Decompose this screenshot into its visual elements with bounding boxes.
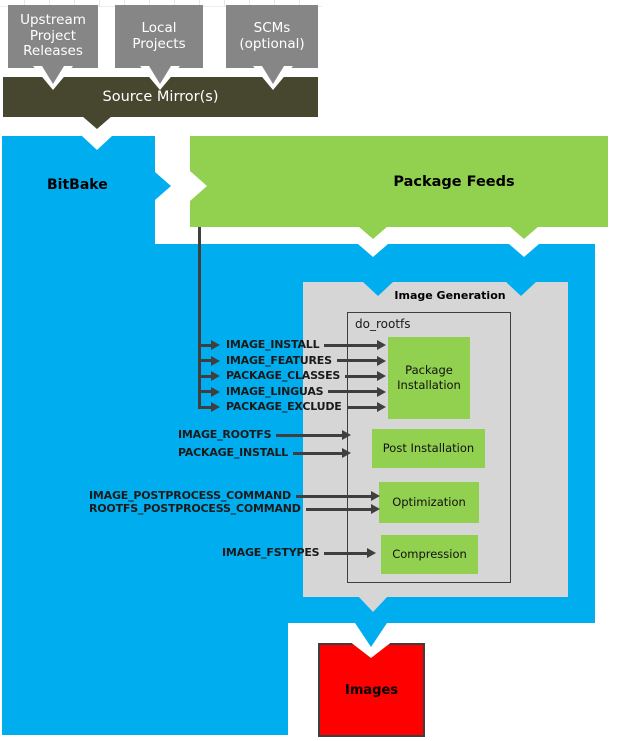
flow-arrow-icon <box>324 548 376 558</box>
post-installation-label: Post Installation <box>383 441 474 456</box>
compression-label: Compression <box>392 547 467 562</box>
variable-row: IMAGE_POSTPROCESS_COMMAND <box>89 489 380 503</box>
flow-arrow-icon <box>293 448 351 458</box>
bitbake-to-images-arrow-icon <box>355 623 387 647</box>
gray-bottom-tail-icon <box>358 596 388 612</box>
variable-row: IMAGE_FSTYPES <box>222 546 376 560</box>
variable-row: ROOTFS_POSTPROCESS_COMMAND <box>89 502 380 516</box>
local-projects-box: Local Projects <box>115 5 203 68</box>
optimization-box: Optimization <box>379 482 479 523</box>
variable-label: PACKAGE_INSTALL <box>178 446 288 460</box>
variable-label: PACKAGE_EXCLUDE <box>226 400 342 414</box>
tail-upstream-icon <box>42 66 64 84</box>
bitbake-label: BitBake <box>47 177 108 193</box>
do-rootfs-label: do_rootfs <box>355 317 411 331</box>
flow-arrow-icon <box>347 402 386 412</box>
flow-arrow-icon <box>345 371 386 381</box>
scms-label: SCMs (optional) <box>226 21 318 53</box>
variable-row: IMAGE_LINGUAS <box>198 385 386 399</box>
flow-arrow-icon <box>276 430 351 440</box>
variable-label: IMAGE_INSTALL <box>226 338 319 352</box>
post-installation-box: Post Installation <box>372 429 485 468</box>
variable-row: PACKAGE_EXCLUDE <box>198 400 386 414</box>
feeds-down-arrow-2-icon <box>509 226 539 239</box>
cyan-into-gray-arrow-2-icon <box>506 282 536 296</box>
flow-arrow-icon <box>296 491 380 501</box>
variable-label: PACKAGE_CLASSES <box>226 369 340 383</box>
upstream-project-releases-box: Upstream Project Releases <box>8 5 98 68</box>
source-mirror-label: Source Mirror(s) <box>103 89 219 105</box>
branch-arrow-icon <box>198 340 220 350</box>
compression-box: Compression <box>381 535 478 574</box>
flow-arrow-icon <box>328 387 386 397</box>
variable-row: PACKAGE_INSTALL <box>178 446 351 460</box>
yocto-image-generation-diagram: Upstream Project Releases Local Projects… <box>0 0 625 741</box>
tail-local-icon <box>149 66 171 84</box>
variable-row: IMAGE_FEATURES <box>198 354 386 368</box>
variable-label: ROOTFS_POSTPROCESS_COMMAND <box>89 502 301 516</box>
scms-box: SCMs (optional) <box>226 5 318 68</box>
variable-label: IMAGE_POSTPROCESS_COMMAND <box>89 489 291 503</box>
flow-arrow-icon <box>306 504 380 514</box>
local-projects-label: Local Projects <box>115 21 203 53</box>
upstream-project-releases-label: Upstream Project Releases <box>8 13 98 61</box>
package-installation-box: Package Installation <box>388 337 470 419</box>
images-label: Images <box>345 683 398 698</box>
flow-arrow-icon <box>324 340 386 350</box>
variable-label: IMAGE_FEATURES <box>226 354 332 368</box>
variable-row: IMAGE_INSTALL <box>198 338 386 352</box>
mirror-to-bitbake-arrow-icon <box>82 116 112 129</box>
branch-arrow-icon <box>198 371 220 381</box>
bitbake-lower-block <box>2 623 288 735</box>
bitbake-top-notch-icon <box>82 136 112 150</box>
variable-row: IMAGE_ROOTFS <box>178 428 351 442</box>
bitbake-notch-2-icon <box>509 244 539 257</box>
package-feeds-left-notch-icon <box>190 171 207 201</box>
bitbake-notch-1-icon <box>358 244 388 257</box>
branch-arrow-icon <box>198 387 220 397</box>
feeds-down-arrow-1-icon <box>358 226 388 239</box>
branch-arrow-icon <box>198 356 220 366</box>
variable-row: PACKAGE_CLASSES <box>198 369 386 383</box>
tail-scms-icon <box>262 66 284 84</box>
package-feeds-label: Package Feeds <box>393 174 514 190</box>
flow-arrow-icon <box>337 356 386 366</box>
package-feeds-banner: Package Feeds <box>190 136 608 227</box>
branch-arrow-icon <box>198 402 220 412</box>
bitbake-to-feeds-arrow-icon <box>155 172 171 200</box>
cyan-into-gray-arrow-1-icon <box>363 282 393 296</box>
variable-label: IMAGE_ROOTFS <box>178 428 271 442</box>
variable-label: IMAGE_LINGUAS <box>226 385 323 399</box>
optimization-label: Optimization <box>392 495 466 510</box>
variable-label: IMAGE_FSTYPES <box>222 546 319 560</box>
package-installation-label: Package Installation <box>388 363 470 393</box>
